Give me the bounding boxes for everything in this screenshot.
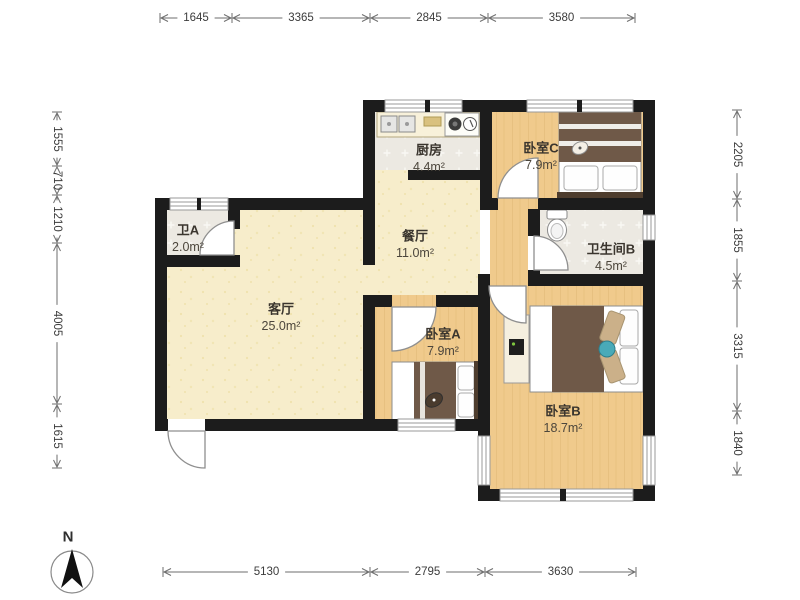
dim-label-left-3: 4005 (51, 311, 63, 337)
dim-chain-left: 1555710121040051615 (51, 112, 63, 468)
room-label-living: 客厅 (268, 302, 294, 317)
dim-label-right-2: 3315 (731, 333, 743, 359)
window-bathroom-a (170, 198, 228, 210)
window-bedroom-a (398, 419, 455, 431)
dim-label-bottom-1: 2795 (415, 566, 441, 578)
floor-plan-svg: 厨房4.4m²卧室C7.9m²卫A2.0m²餐厅11.0m²卫生间B4.5m²客… (0, 0, 800, 600)
wall (363, 295, 375, 431)
wall (436, 295, 490, 307)
dim-label-bottom-2: 3630 (548, 566, 574, 578)
kitchen-doorway-floor (375, 170, 408, 181)
stove-icon (445, 113, 479, 136)
wall (480, 198, 498, 210)
window-bathroom-b (643, 215, 655, 240)
bedroom-c-doorway-floor (498, 198, 538, 210)
north-arrow-icon (61, 549, 83, 588)
dim-label-right-0: 2205 (731, 142, 743, 168)
kitchen-counter-icon (377, 112, 480, 137)
bed-icon (392, 361, 480, 421)
toilet-icon (547, 210, 567, 241)
compass: N (51, 529, 93, 594)
corridor-floor (490, 209, 528, 286)
room-area-kitchen: 4.4m² (413, 160, 445, 174)
window-bedroom-b-left (478, 436, 490, 485)
room-area-bedroomA: 7.9m² (427, 344, 459, 358)
room-label-kitchen: 厨房 (416, 143, 442, 158)
wall (528, 274, 655, 286)
dim-chain-bottom: 513027953630 (163, 566, 636, 578)
entrance-door-swing (168, 431, 205, 468)
dim-label-left-0: 1555 (51, 126, 63, 152)
dim-label-right-1: 1855 (731, 227, 743, 253)
floor-plan-page: 厨房4.4m²卧室C7.9m²卫A2.0m²餐厅11.0m²卫生间B4.5m²客… (0, 0, 800, 600)
wall (155, 198, 167, 431)
window-bedroom-b-bottom (500, 489, 633, 501)
room-label-dining: 餐厅 (401, 229, 428, 244)
dim-label-top-0: 1645 (183, 12, 209, 24)
dim-chain-top: 1645336528453580 (160, 12, 635, 24)
dim-label-left-2: 1210 (51, 206, 63, 232)
room-label-bedroomB: 卧室B (545, 404, 580, 419)
room-area-dining: 11.0m² (396, 246, 434, 260)
wall (155, 255, 240, 267)
vent-icon (424, 117, 441, 126)
wall (538, 198, 655, 210)
tv-cabinet-icon (504, 315, 529, 383)
wall (363, 100, 375, 265)
dim-chain-right: 2205185533151840 (731, 110, 743, 475)
room-area-bedroomC: 7.9m² (525, 158, 557, 172)
bedroom-a-doorway-floor (392, 295, 436, 308)
dim-label-bottom-0: 5130 (254, 566, 280, 578)
dim-label-left-1: 710 (51, 171, 63, 190)
room-label-bathA: 卫A (177, 223, 200, 238)
wall (528, 209, 540, 236)
room-label-bedroomA: 卧室A (425, 327, 461, 342)
room-label-bathB: 卫生间B (587, 242, 635, 257)
compass-north-label: N (63, 529, 74, 546)
room-area-bedroomB: 18.7m² (544, 421, 583, 435)
dim-label-left-4: 1615 (51, 423, 63, 449)
window-kitchen (385, 100, 462, 112)
room-label-bedroomC: 卧室C (523, 141, 559, 156)
room-area-bathA: 2.0m² (172, 240, 204, 254)
dim-label-top-3: 3580 (549, 12, 575, 24)
bed-icon (557, 112, 643, 199)
dim-label-top-1: 3365 (288, 12, 314, 24)
wall (480, 100, 492, 210)
room-area-living: 25.0m² (262, 319, 301, 333)
window-bedroom-c (527, 100, 633, 112)
door-opening (168, 419, 205, 431)
window-bedroom-b-right (643, 436, 655, 485)
room-area-bathB: 4.5m² (595, 259, 627, 273)
dim-label-top-2: 2845 (416, 12, 442, 24)
dim-label-right-3: 1840 (731, 430, 743, 456)
living-dining-opening-floor (363, 265, 375, 296)
